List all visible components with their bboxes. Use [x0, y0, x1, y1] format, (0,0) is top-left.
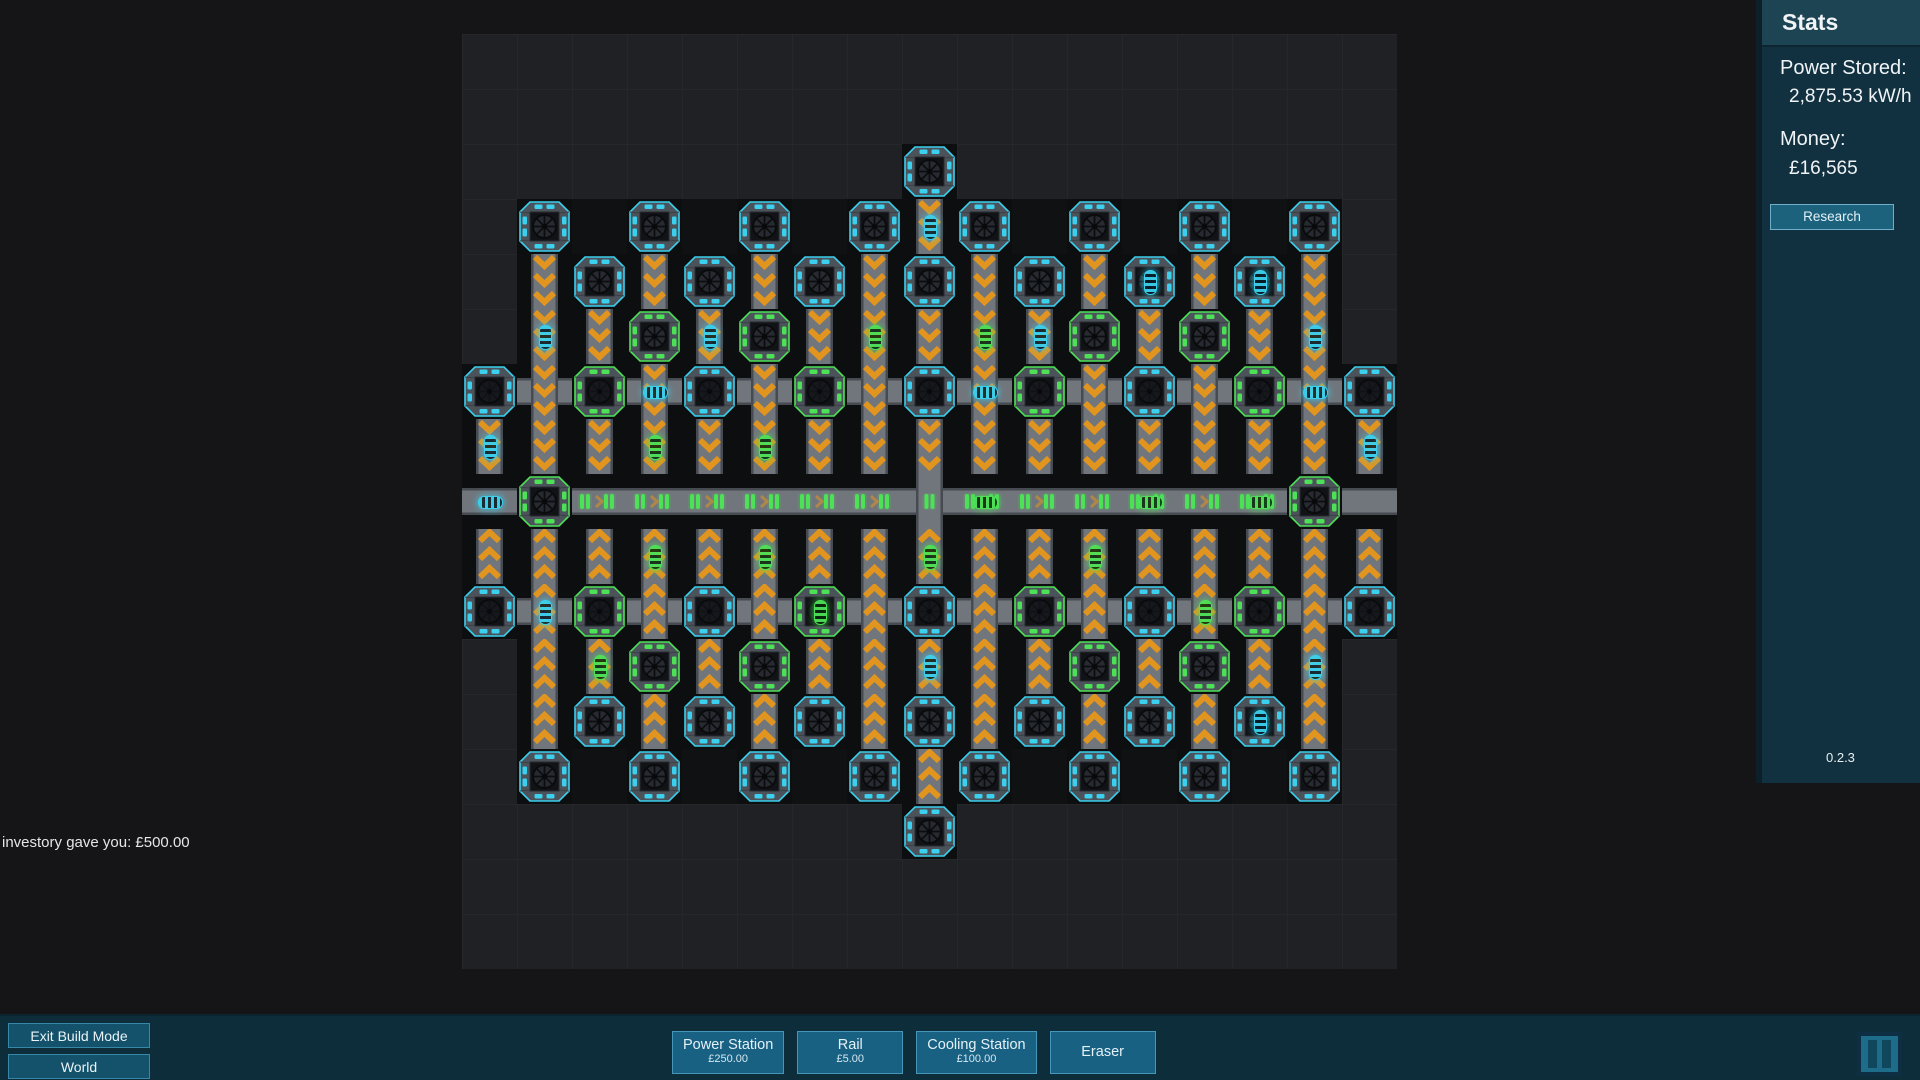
money-value: £16,565 [1789, 158, 1858, 180]
tile-rail-up[interactable] [737, 529, 792, 584]
tile-conveyor[interactable] [1232, 474, 1287, 529]
tile-station-cyan[interactable] [957, 199, 1012, 254]
tile-rail-down[interactable] [737, 254, 792, 309]
stats-header: Stats [1762, 0, 1920, 47]
tile-conveyor[interactable] [1012, 474, 1067, 529]
tile-rail-up[interactable] [847, 694, 902, 749]
tile-station-cyan[interactable] [682, 254, 737, 309]
pause-icon [1868, 1040, 1877, 1068]
world-button[interactable]: World [8, 1054, 150, 1079]
tile-station-cyan[interactable] [737, 749, 792, 804]
build-button-label: Power Station [683, 1037, 773, 1053]
tile-station-green[interactable] [627, 309, 682, 364]
tile-rail-cross[interactable] [957, 584, 1012, 639]
tile-rail-up[interactable] [627, 529, 682, 584]
tile-station-cyan[interactable] [1232, 694, 1287, 749]
tile-station-dark-cyan[interactable] [682, 364, 737, 419]
tile-rail-cross[interactable] [627, 584, 682, 639]
board-dark-cell [572, 199, 627, 254]
build-button-label: Eraser [1061, 1032, 1145, 1072]
build-button-price: £100.00 [927, 1053, 1025, 1065]
tile-rail-down[interactable] [847, 419, 902, 474]
tile-rail-cross[interactable] [737, 364, 792, 419]
tile-rail-up[interactable] [1287, 694, 1342, 749]
tile-station-green[interactable] [517, 474, 572, 529]
tile-station-cyan[interactable] [1287, 749, 1342, 804]
tile-rail-down[interactable] [1067, 254, 1122, 309]
build-button-label: Cooling Station [927, 1037, 1025, 1053]
tile-rail-cross[interactable] [1287, 584, 1342, 639]
build-button-price: £5.00 [808, 1053, 892, 1065]
tile-station-dark-green[interactable] [1012, 364, 1067, 419]
tile-conveyor[interactable] [627, 474, 682, 529]
tile-station-cyan[interactable] [1122, 694, 1177, 749]
tile-rail-up[interactable] [1342, 529, 1397, 584]
tile-rail-down[interactable] [737, 419, 792, 474]
tile-station-dark-cyan[interactable] [682, 584, 737, 639]
tile-rail-up[interactable] [902, 529, 957, 584]
tile-station-dark-green[interactable] [572, 364, 627, 419]
tile-station-cyan[interactable] [517, 199, 572, 254]
tile-conveyor[interactable] [1067, 474, 1122, 529]
game-screen: investory gave you: £500.00 Stats Power … [0, 0, 1920, 1080]
board-dark-cell [1012, 749, 1067, 804]
tile-rail-down[interactable] [1177, 254, 1232, 309]
tile-rail-down[interactable] [1232, 419, 1287, 474]
exit-build-mode-button[interactable]: Exit Build Mode [8, 1023, 150, 1048]
tile-conveyor[interactable] [1122, 474, 1177, 529]
tile-station-green[interactable] [1067, 309, 1122, 364]
tile-station-cyan[interactable] [902, 694, 957, 749]
stats-panel: Stats Power Stored: 2,875.53 kW/h Money:… [1756, 0, 1920, 783]
tile-rail-up[interactable] [957, 529, 1012, 584]
tile-station-cyan[interactable] [902, 804, 957, 859]
tile-rail-up[interactable] [682, 529, 737, 584]
build-toolbar: Exit Build Mode World Power Station£250.… [0, 1014, 1920, 1080]
tile-rail-down[interactable] [902, 309, 957, 364]
tile-rail-down[interactable] [792, 419, 847, 474]
tile-station-cyan[interactable] [1012, 254, 1067, 309]
build-button-price: £250.00 [683, 1053, 773, 1065]
tile-rail-down[interactable] [682, 309, 737, 364]
tile-station-cyan[interactable] [902, 144, 957, 199]
tile-station-dark-green[interactable] [1232, 364, 1287, 419]
tile-rail-up[interactable] [792, 529, 847, 584]
tile-station-cyan[interactable] [572, 254, 627, 309]
tile-rail-down[interactable] [957, 309, 1012, 364]
tile-rail-down[interactable] [517, 309, 572, 364]
tile-station-dark-cyan[interactable] [462, 364, 517, 419]
tile-rail-down[interactable] [847, 309, 902, 364]
tile-station-green[interactable] [737, 639, 792, 694]
power-stored-label: Power Stored: [1780, 57, 1907, 80]
tile-conveyor[interactable] [1177, 474, 1232, 529]
tile-station-cyan[interactable] [847, 199, 902, 254]
board-dark-cell [572, 749, 627, 804]
tile-station-dark-cyan[interactable] [902, 364, 957, 419]
research-button[interactable]: Research [1770, 204, 1894, 230]
tile-rail-up[interactable] [682, 639, 737, 694]
tile-station-cyan[interactable] [957, 749, 1012, 804]
board-dark-cell [792, 199, 847, 254]
tile-rail-down[interactable] [627, 254, 682, 309]
tile-rail-up[interactable] [1067, 694, 1122, 749]
tile-rail-up[interactable] [1177, 529, 1232, 584]
tile-rail-cross[interactable] [957, 364, 1012, 419]
notification-text: investory gave you: £500.00 [2, 834, 190, 851]
tile-station-cyan[interactable] [517, 749, 572, 804]
tile-rail-down[interactable] [1287, 309, 1342, 364]
tile-station-dark-cyan[interactable] [1122, 584, 1177, 639]
tile-station-dark-green[interactable] [792, 584, 847, 639]
tile-rail-up[interactable] [1232, 529, 1287, 584]
tile-rail-up[interactable] [737, 694, 792, 749]
tile-station-cyan[interactable] [1177, 199, 1232, 254]
tile-station-dark-cyan[interactable] [902, 584, 957, 639]
board-dark-cell [1122, 199, 1177, 254]
tile-rail-down[interactable] [517, 419, 572, 474]
tile-rail-up[interactable] [1067, 529, 1122, 584]
money-label: Money: [1780, 128, 1846, 151]
cooling-station-button[interactable]: Cooling Station£100.00 [916, 1031, 1036, 1074]
tile-station-cyan[interactable] [847, 749, 902, 804]
tile-rail-down[interactable] [1122, 419, 1177, 474]
tile-rail-up[interactable] [572, 529, 627, 584]
tile-station-dark-green[interactable] [1012, 584, 1067, 639]
board-dark-cell [682, 199, 737, 254]
tile-station-cyan[interactable] [1287, 199, 1342, 254]
tile-rail-up[interactable] [1122, 639, 1177, 694]
tile-station-cyan[interactable] [627, 749, 682, 804]
tile-rail-up[interactable] [1287, 639, 1342, 694]
tile-rail-up[interactable] [792, 639, 847, 694]
tile-station-cyan[interactable] [792, 254, 847, 309]
tile-rail-down[interactable] [627, 419, 682, 474]
tile-station-cyan[interactable] [627, 199, 682, 254]
version-label: 0.2.3 [1826, 750, 1855, 765]
tile-rail-down[interactable] [957, 254, 1012, 309]
tile-rail-up[interactable] [1012, 529, 1067, 584]
tile-conveyor[interactable] [957, 474, 1012, 529]
tile-station-cyan[interactable] [1122, 254, 1177, 309]
tile-station-cyan[interactable] [682, 694, 737, 749]
tile-rail-down[interactable] [517, 254, 572, 309]
tile-rail-down[interactable] [847, 254, 902, 309]
tile-station-green[interactable] [1067, 639, 1122, 694]
tile-rail-down[interactable] [1067, 419, 1122, 474]
build-buttons: Power Station£250.00Rail£5.00Cooling Sta… [672, 1031, 1156, 1074]
tile-station-cyan[interactable] [1067, 199, 1122, 254]
stats-title: Stats [1762, 0, 1920, 36]
tile-station-green[interactable] [1177, 639, 1232, 694]
tile-rail-cross[interactable] [627, 364, 682, 419]
tile-rail-up[interactable] [1122, 529, 1177, 584]
tile-rail-down[interactable] [1122, 309, 1177, 364]
pause-button[interactable] [1857, 1032, 1902, 1076]
tile-rail-up[interactable] [1012, 639, 1067, 694]
tile-station-cyan[interactable] [1232, 254, 1287, 309]
pause-icon [1882, 1040, 1891, 1068]
board-dark-cell [682, 749, 737, 804]
tile-station-cyan[interactable] [902, 254, 957, 309]
tile-station-green[interactable] [627, 639, 682, 694]
tile-rail-down[interactable] [572, 309, 627, 364]
tile-rail-up[interactable] [517, 639, 572, 694]
tile-station-cyan[interactable] [1177, 749, 1232, 804]
board-dark-cell [1122, 749, 1177, 804]
tile-station-cyan[interactable] [1012, 694, 1067, 749]
tile-rail-up[interactable] [627, 694, 682, 749]
tile-rail-up[interactable] [902, 749, 957, 804]
tile-rail-cross[interactable] [517, 584, 572, 639]
tile-rail-cross[interactable] [847, 364, 902, 419]
tile-rail-up[interactable] [517, 529, 572, 584]
tile-rail-up[interactable] [902, 639, 957, 694]
tile-rail-up[interactable] [847, 639, 902, 694]
tile-station-green[interactable] [737, 309, 792, 364]
tile-rail-cross[interactable] [847, 584, 902, 639]
eraser-button[interactable]: Eraser [1050, 1031, 1156, 1074]
tile-station-dark-green[interactable] [1232, 584, 1287, 639]
tile-rail-cross[interactable] [1067, 364, 1122, 419]
tile-rail-cross[interactable] [1067, 584, 1122, 639]
tile-rail-down[interactable] [1177, 419, 1232, 474]
tile-rail-up[interactable] [957, 639, 1012, 694]
board-dark-cell [1232, 199, 1287, 254]
tile-rail-down[interactable] [902, 419, 957, 474]
tile-rail-down[interactable] [572, 419, 627, 474]
tile-rail-down[interactable] [682, 419, 737, 474]
tile-rail-cross[interactable] [1177, 364, 1232, 419]
tile-conveyor-cross[interactable] [902, 474, 957, 529]
tile-station-dark-cyan[interactable] [1342, 584, 1397, 639]
tile-rail-up[interactable] [957, 694, 1012, 749]
tile-station-dark-cyan[interactable] [462, 584, 517, 639]
tile-station-cyan[interactable] [792, 694, 847, 749]
tile-station-cyan[interactable] [572, 694, 627, 749]
tile-rail-down[interactable] [1342, 419, 1397, 474]
tile-conveyor[interactable] [572, 474, 627, 529]
tile-rail-down[interactable] [1012, 309, 1067, 364]
tile-station-dark-green[interactable] [792, 364, 847, 419]
tile-rail-up[interactable] [847, 529, 902, 584]
power-stored-value: 2,875.53 kW/h [1789, 86, 1912, 108]
tile-rail-down[interactable] [1012, 419, 1067, 474]
tile-rail-cross[interactable] [737, 584, 792, 639]
rail-button[interactable]: Rail£5.00 [797, 1031, 903, 1074]
tile-rail-cross[interactable] [517, 364, 572, 419]
build-button-label: Rail [808, 1037, 892, 1053]
tile-rail-down[interactable] [792, 309, 847, 364]
board-dark-cell [792, 749, 847, 804]
build-grid[interactable] [462, 34, 1397, 969]
tile-station-dark-cyan[interactable] [1122, 364, 1177, 419]
tile-rail-up[interactable] [1232, 639, 1287, 694]
tile-rail-horizontal[interactable] [1342, 474, 1397, 529]
tile-rail-up[interactable] [1177, 694, 1232, 749]
tile-conveyor[interactable] [682, 474, 737, 529]
tile-rail-cross[interactable] [1287, 364, 1342, 419]
tile-rail-down[interactable] [902, 199, 957, 254]
tile-conveyor[interactable] [737, 474, 792, 529]
tile-station-cyan[interactable] [737, 199, 792, 254]
tile-rail-up[interactable] [572, 639, 627, 694]
tile-rail-horizontal[interactable] [462, 474, 517, 529]
tile-station-green[interactable] [1287, 474, 1342, 529]
power-station-button[interactable]: Power Station£250.00 [672, 1031, 784, 1074]
board-dark-cell [1232, 749, 1287, 804]
tile-rail-down[interactable] [1287, 254, 1342, 309]
tile-station-dark-green[interactable] [572, 584, 627, 639]
tile-rail-down[interactable] [957, 419, 1012, 474]
tile-rail-up[interactable] [462, 529, 517, 584]
tile-rail-down[interactable] [462, 419, 517, 474]
board-dark-cell [1012, 199, 1067, 254]
tile-conveyor[interactable] [792, 474, 847, 529]
tile-rail-down[interactable] [1232, 309, 1287, 364]
tile-rail-cross[interactable] [1177, 584, 1232, 639]
tile-rail-up[interactable] [1287, 529, 1342, 584]
tile-station-cyan[interactable] [1067, 749, 1122, 804]
tile-station-green[interactable] [1177, 309, 1232, 364]
tile-rail-up[interactable] [517, 694, 572, 749]
tile-conveyor[interactable] [847, 474, 902, 529]
tile-station-dark-cyan[interactable] [1342, 364, 1397, 419]
tile-rail-down[interactable] [1287, 419, 1342, 474]
